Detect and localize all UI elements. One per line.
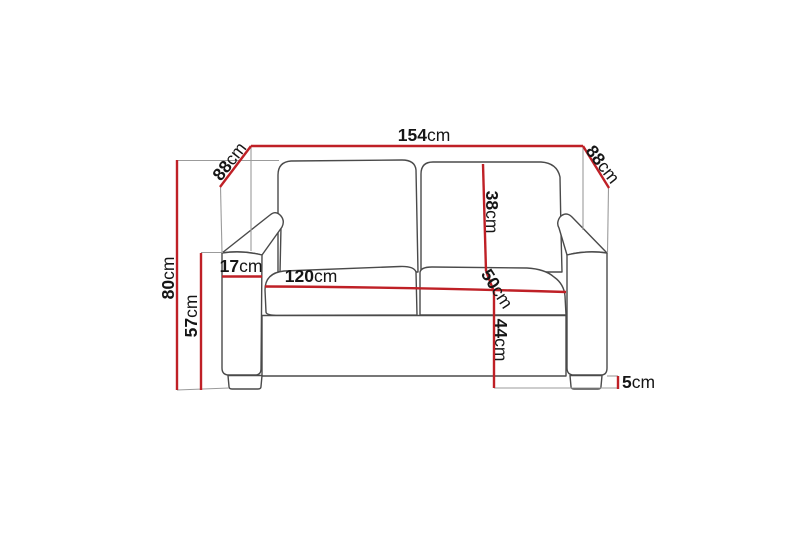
sofa-leg-right [570,376,602,390]
dim-label-seat-height: 44cm [491,319,511,362]
dim-label-seat-width: 120cm [285,266,338,286]
ext-bottom-left-baseline [177,388,229,390]
ext-front-right-vertical [608,188,609,252]
dim-label-armrest-height: 57cm [181,295,201,338]
sofa-armrest-left-back-edge [280,227,281,273]
dim-label-overall-height: 80cm [158,257,178,300]
sofa-armrest-left-top [222,213,283,255]
dim-label-leg-height: 5cm [622,372,655,392]
sofa-outline [222,160,607,389]
dim-label-depth-left: 88cm [208,138,250,184]
sofa-backrest-cushion-left [278,160,418,272]
dim-label-overall-width: 154cm [398,125,451,145]
sofa-leg-left [228,376,262,390]
diagram-canvas: 154cm 88cm 88cm 80cm 57cm 17cm 120cm 38c… [0,0,800,533]
sofa-base [262,316,566,377]
dim-label-depth-right: 88cm [582,141,624,187]
ext-front-left-vertical [221,187,223,252]
dim-label-armrest-width: 17cm [220,256,263,276]
dim-label-backrest-cushion-height: 38cm [482,191,502,234]
sofa-armrest-right-front [567,252,607,375]
sofa-dimension-diagram: 154cm 88cm 88cm 80cm 57cm 17cm 120cm 38c… [0,0,800,533]
sofa-armrest-right-top [558,214,607,255]
